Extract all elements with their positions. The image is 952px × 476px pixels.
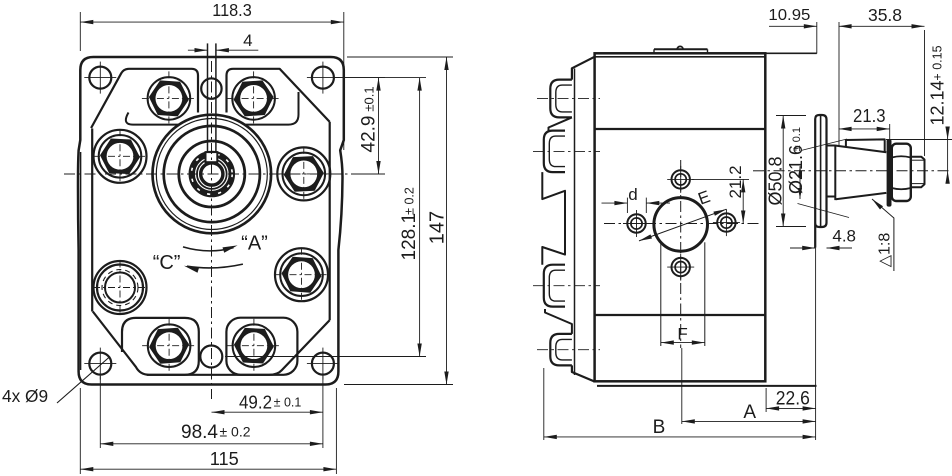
- svg-text:42.9: 42.9: [358, 116, 379, 153]
- svg-text:12.14: 12.14: [928, 80, 948, 125]
- svg-text:d: d: [628, 185, 637, 204]
- svg-text:± 0.1: ± 0.1: [274, 396, 302, 410]
- svg-text:147: 147: [427, 211, 449, 244]
- svg-text:4: 4: [243, 31, 252, 50]
- svg-text:35.8: 35.8: [868, 5, 902, 25]
- svg-text:4x Ø9: 4x Ø9: [2, 386, 48, 406]
- svg-text:A: A: [743, 402, 756, 423]
- svg-text:± 0.1: ± 0.1: [791, 127, 803, 151]
- svg-text:22.6: 22.6: [776, 389, 810, 410]
- svg-text:Ø50.8: Ø50.8: [766, 156, 786, 205]
- svg-text:4.8: 4.8: [832, 226, 856, 245]
- svg-text:±0.1: ±0.1: [362, 86, 377, 111]
- svg-text:“C”: “C”: [153, 252, 181, 274]
- svg-text:49.2: 49.2: [239, 392, 272, 413]
- svg-text:21.2: 21.2: [726, 165, 745, 198]
- svg-text:115: 115: [210, 449, 239, 469]
- svg-text:± 0.2: ± 0.2: [403, 187, 417, 215]
- svg-text:21.3: 21.3: [853, 106, 886, 126]
- svg-text:98.4: 98.4: [181, 421, 218, 443]
- svg-text:B: B: [653, 417, 666, 438]
- svg-text:F: F: [677, 325, 687, 344]
- svg-text:± 0.2: ± 0.2: [219, 423, 250, 439]
- svg-text:“A”: “A”: [241, 232, 268, 254]
- svg-text:10.95: 10.95: [768, 7, 810, 24]
- svg-text:+ 0.15: + 0.15: [931, 45, 945, 80]
- svg-text:118.3: 118.3: [212, 0, 252, 20]
- svg-text:△1:8: △1:8: [877, 233, 894, 268]
- svg-text:128.1: 128.1: [399, 213, 420, 261]
